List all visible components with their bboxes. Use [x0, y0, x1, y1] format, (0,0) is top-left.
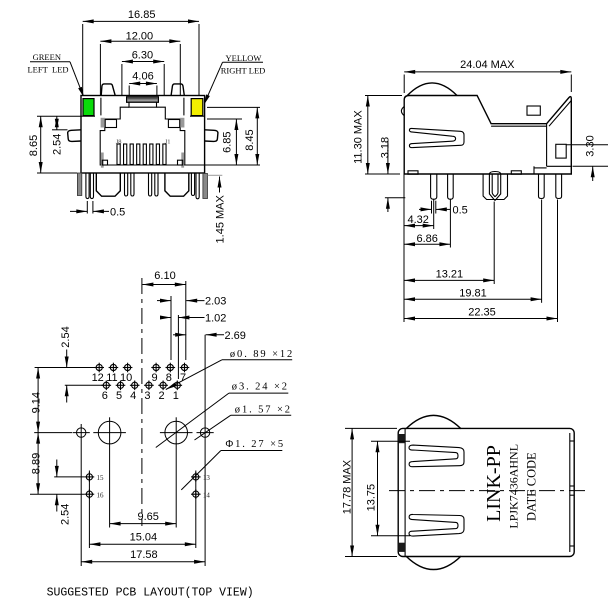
svg-text:3: 3 [144, 390, 150, 402]
svg-text:ø3. 24 ×2: ø3. 24 ×2 [232, 382, 289, 393]
svg-text:3.18: 3.18 [379, 137, 391, 158]
svg-text:8.65: 8.65 [28, 135, 40, 156]
svg-text:1: 1 [173, 390, 179, 402]
svg-text:2.03: 2.03 [205, 296, 226, 308]
svg-text:9.65: 9.65 [137, 511, 158, 523]
svg-text:4.06: 4.06 [132, 71, 153, 83]
svg-text:2.54: 2.54 [60, 504, 72, 525]
svg-text:13.21: 13.21 [436, 269, 464, 281]
svg-text:DATE CODE: DATE CODE [525, 452, 539, 521]
svg-text:9.14: 9.14 [30, 392, 42, 413]
svg-text:6.30: 6.30 [132, 50, 153, 62]
svg-text:6.10: 6.10 [154, 270, 175, 282]
svg-text:15: 15 [97, 474, 105, 482]
svg-text:6.86: 6.86 [416, 233, 437, 245]
svg-text:19.81: 19.81 [459, 287, 487, 299]
svg-text:9: 9 [152, 372, 158, 384]
svg-text:15.04: 15.04 [130, 531, 158, 543]
svg-text:8.45: 8.45 [244, 129, 256, 150]
svg-text:Φ1. 27 ×5: Φ1. 27 ×5 [226, 439, 286, 450]
svg-text:4.32: 4.32 [407, 214, 428, 226]
svg-text:GREEN: GREEN [33, 52, 61, 62]
svg-text:ø1. 57 ×2: ø1. 57 ×2 [235, 404, 292, 415]
svg-text:0.5: 0.5 [110, 207, 125, 219]
svg-text:13.75: 13.75 [366, 484, 378, 512]
svg-text:5: 5 [116, 390, 122, 402]
svg-text:J8: J8 [116, 139, 122, 146]
svg-text:RIGHT LED: RIGHT LED [221, 66, 266, 76]
svg-text:24.04 MAX: 24.04 MAX [460, 59, 515, 71]
svg-text:J1: J1 [165, 139, 171, 146]
svg-text:14: 14 [203, 491, 211, 499]
svg-text:13: 13 [203, 474, 211, 482]
svg-text:16: 16 [97, 491, 105, 499]
svg-text:4: 4 [130, 390, 136, 402]
svg-text:LPJK7436AHNL: LPJK7436AHNL [507, 444, 521, 529]
svg-text:YELLOW: YELLOW [226, 53, 262, 63]
svg-text:1.02: 1.02 [205, 313, 226, 325]
svg-text:8.89: 8.89 [30, 453, 42, 474]
svg-text:2.69: 2.69 [225, 330, 246, 342]
svg-text:11.30 MAX: 11.30 MAX [353, 110, 365, 164]
svg-text:2: 2 [159, 390, 165, 402]
svg-text:3.30: 3.30 [584, 135, 596, 156]
svg-text:LEFT LED: LEFT LED [27, 65, 68, 75]
svg-text:2.54: 2.54 [60, 326, 72, 347]
svg-text:11: 11 [106, 372, 117, 384]
svg-text:8: 8 [166, 372, 172, 384]
svg-text:12: 12 [92, 372, 104, 384]
svg-text:2.54: 2.54 [51, 134, 63, 155]
svg-text:ø0. 89 ×12: ø0. 89 ×12 [230, 349, 294, 360]
svg-text:6.85: 6.85 [222, 131, 234, 152]
svg-text:10: 10 [120, 372, 132, 384]
svg-text:6: 6 [102, 390, 108, 402]
svg-text:7: 7 [180, 372, 186, 384]
svg-text:17.78 MAX: 17.78 MAX [342, 459, 354, 514]
svg-text:22.35: 22.35 [468, 307, 496, 319]
svg-text:SUGGESTED PCB LAYOUT(TOP VIEW): SUGGESTED PCB LAYOUT(TOP VIEW) [47, 587, 254, 600]
svg-text:0.5: 0.5 [453, 204, 468, 216]
svg-text:1.45 MAX: 1.45 MAX [215, 194, 227, 243]
svg-text:LINK-PP: LINK-PP [483, 445, 505, 522]
svg-text:17.58: 17.58 [130, 549, 158, 561]
svg-text:16.85: 16.85 [128, 9, 156, 21]
